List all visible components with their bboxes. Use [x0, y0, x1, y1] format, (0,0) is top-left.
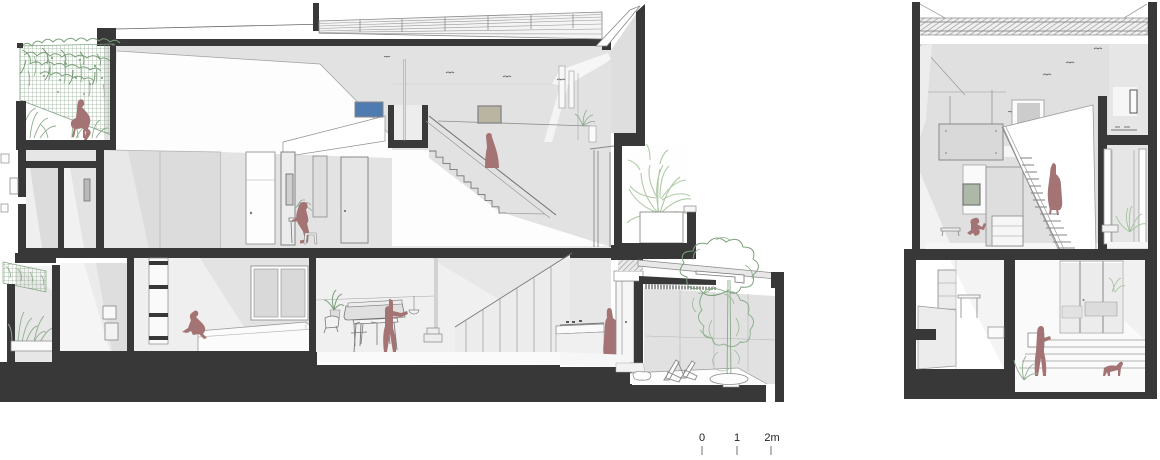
svg-text:1: 1	[734, 432, 740, 444]
svg-text:0: 0	[699, 432, 705, 444]
svg-text:2m: 2m	[764, 432, 779, 444]
